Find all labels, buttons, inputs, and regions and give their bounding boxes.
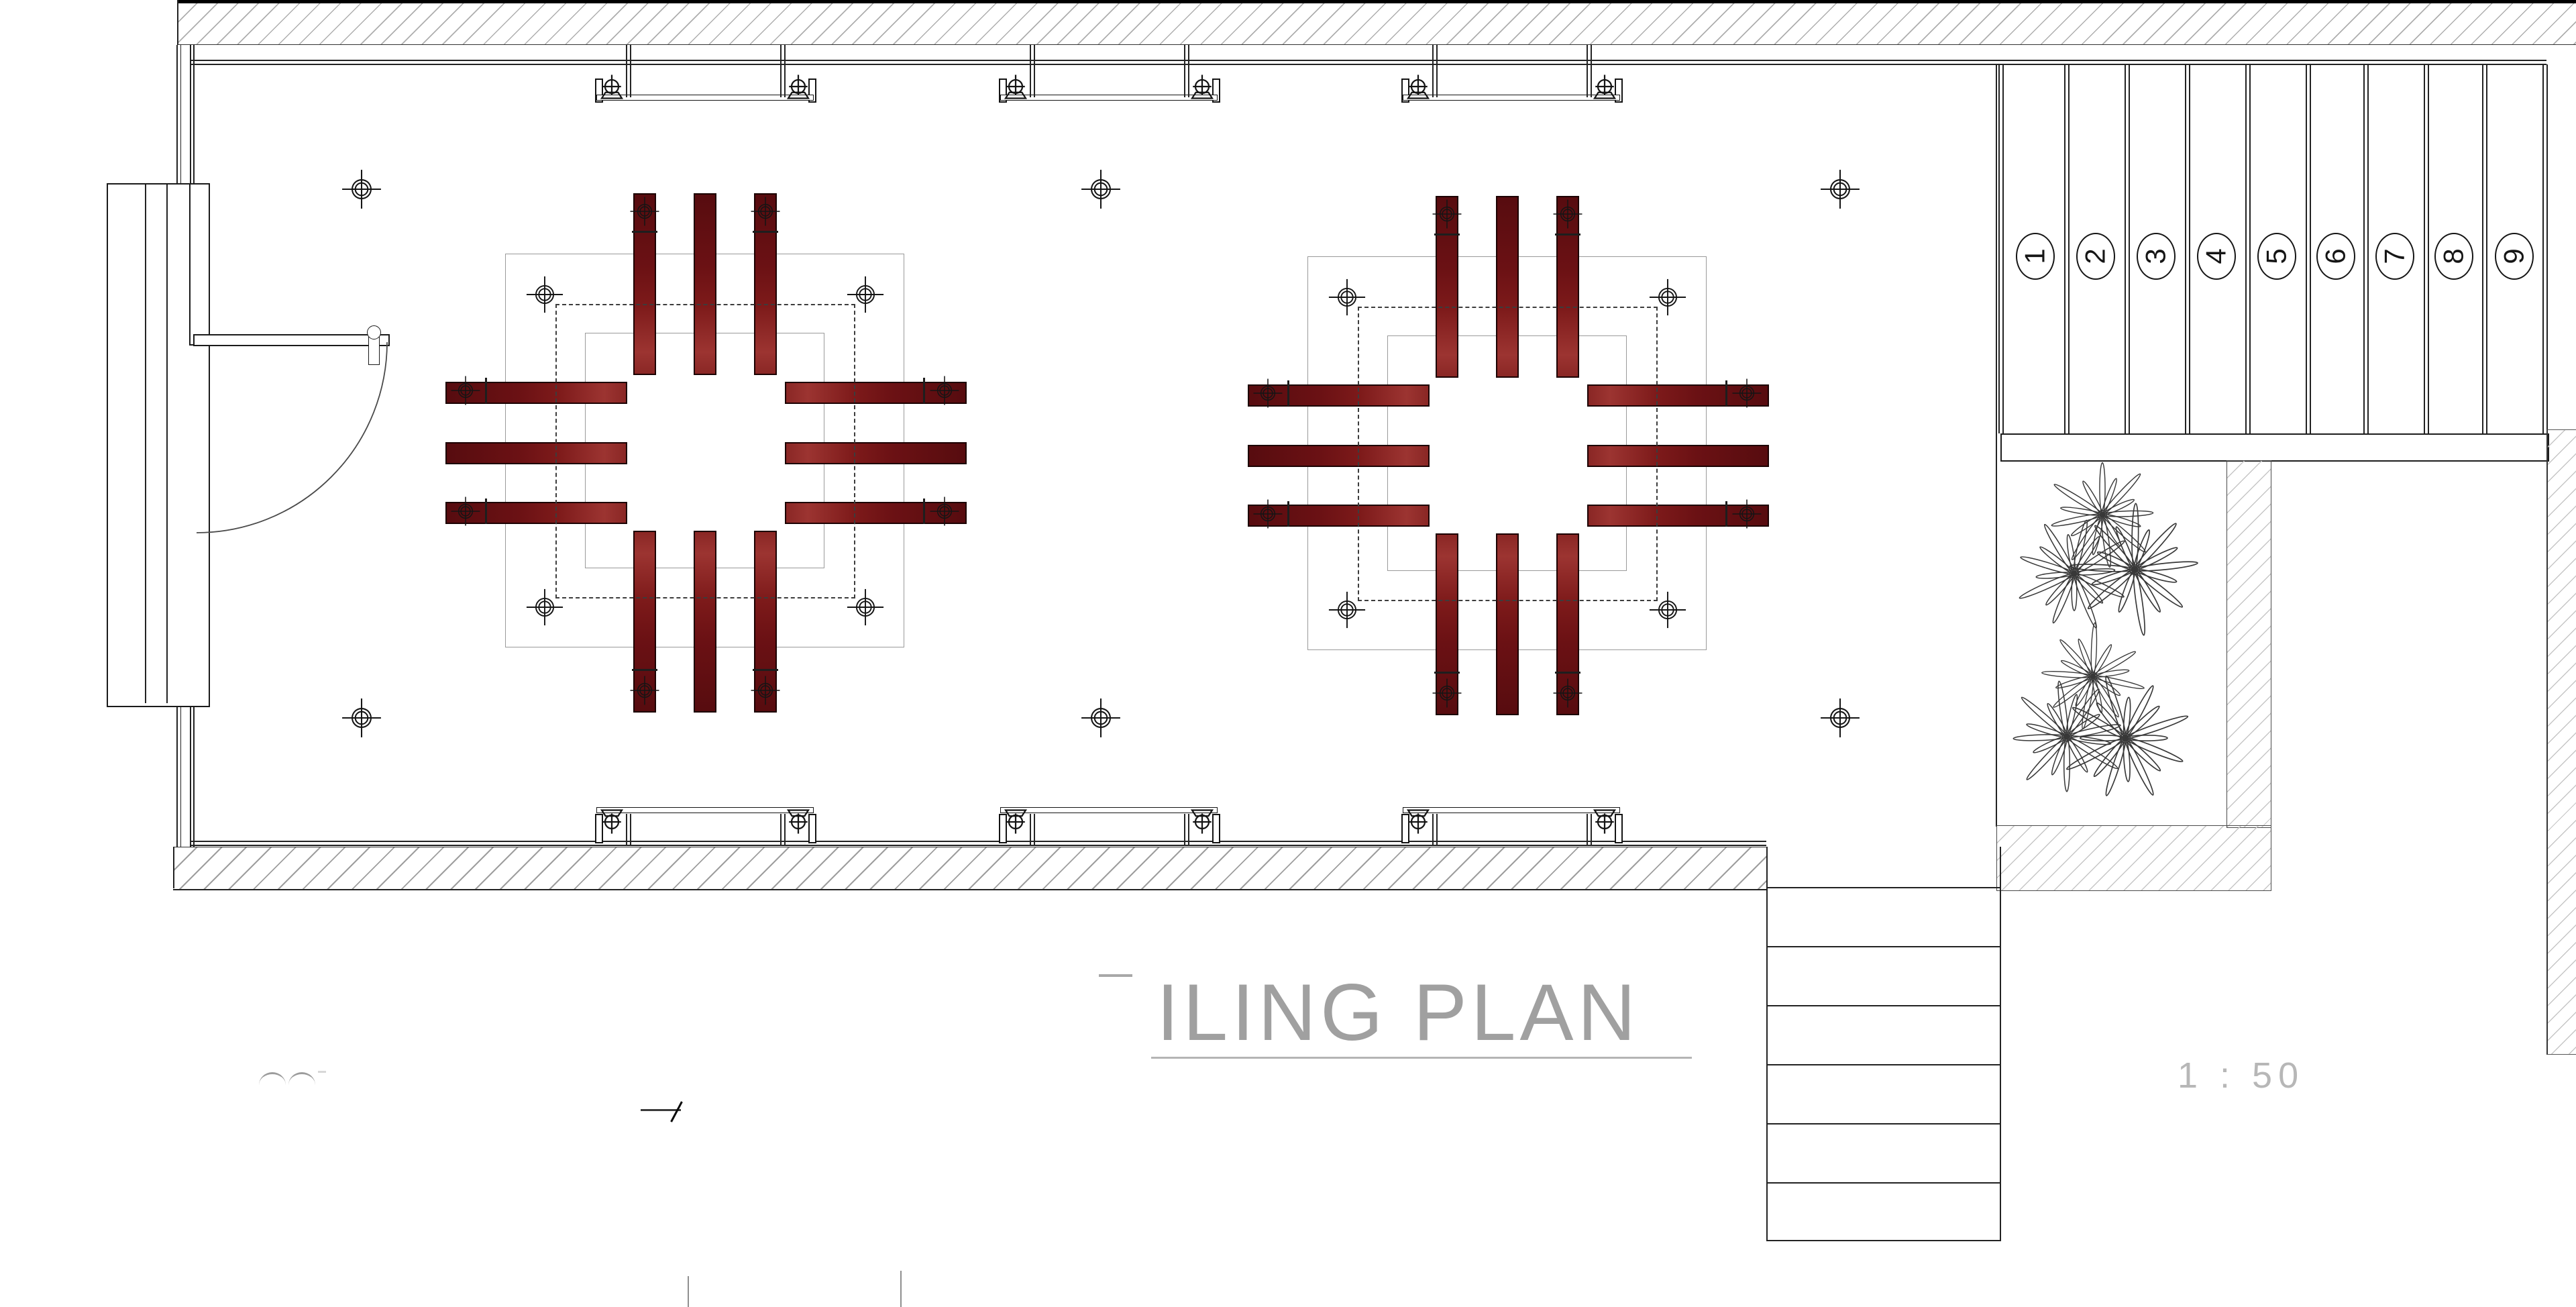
downlight-icon [750, 196, 781, 227]
top-window-3 [1401, 45, 1623, 103]
room-top-face-line-b [191, 64, 2546, 65]
downlight-icon [929, 496, 960, 527]
top-wall-left-edge [177, 0, 178, 45]
beam-tick [1287, 501, 1289, 527]
deck-board-joint [2129, 64, 2130, 433]
ceiling-light-icon [341, 697, 382, 739]
stair-tread-line [1766, 1005, 2001, 1006]
deck-board-number: 5 [2263, 248, 2291, 264]
blind-roller-icon [1405, 73, 1432, 100]
window-jamb-line [1587, 45, 1588, 97]
deck-board-joint [2486, 64, 2487, 433]
pocket-rim [596, 807, 814, 813]
window-jamb-line [1030, 814, 1031, 846]
downlight-icon [1552, 199, 1583, 229]
deck-board-tag-1: 1 [2016, 233, 2055, 280]
deck-board-joint [2249, 64, 2251, 433]
window-jamb-line [1587, 814, 1588, 846]
window-jamb-line [1432, 45, 1434, 97]
downlight-icon [450, 375, 481, 406]
door-panel-mullion-2 [166, 185, 168, 703]
top-window-1 [595, 45, 816, 103]
ceiling-feature-2 [1239, 185, 1776, 722]
blind-roller-icon [598, 808, 625, 835]
window-jamb-line [626, 45, 627, 97]
beam-tick [1555, 672, 1580, 674]
blind-roller-icon [1189, 73, 1216, 100]
downlight-icon [1731, 378, 1762, 409]
blind-roller-icon [785, 808, 812, 835]
deck-board-number: 1 [2021, 248, 2049, 264]
top-wall-hatch [177, 3, 2576, 45]
deck-board-tag-3: 3 [2137, 233, 2176, 280]
door-swing-arc [174, 322, 402, 550]
downlight-icon [1552, 678, 1583, 709]
blind-roller-icon [598, 73, 625, 100]
downlight-icon [1731, 499, 1762, 529]
bottom-window-3 [1401, 788, 1623, 846]
window-jamb-line [780, 45, 782, 97]
deck-board-tag-2: 2 [2076, 233, 2115, 280]
deck-board-joint [2310, 64, 2311, 433]
deck-board-joint [2185, 64, 2186, 433]
blind-roller-icon [1591, 73, 1618, 100]
window-jamb-line [1432, 814, 1434, 846]
downlight-icon [1432, 678, 1462, 709]
door-jamb-panel [189, 183, 210, 346]
beam-tick [632, 669, 657, 671]
beam-tick [923, 378, 925, 403]
clipped-text-dot [318, 1071, 326, 1073]
stair-tread-line [1766, 1240, 2001, 1241]
beam-tick [485, 378, 487, 403]
deck-board-number: 3 [2142, 248, 2170, 264]
downlight-icon [750, 675, 781, 706]
deck-board-joint [2245, 64, 2247, 433]
stair-tread-line [1766, 887, 2001, 888]
beam-tick [1725, 501, 1727, 527]
ceiling-light-icon [1819, 168, 1861, 210]
beam-tick [923, 499, 925, 524]
downlight-icon [846, 588, 885, 627]
deck-board-tag-7: 7 [2375, 233, 2414, 280]
stair-tread-line [1766, 1123, 2001, 1125]
blind-roller-icon [1189, 808, 1216, 835]
ceiling-light-icon [1819, 697, 1861, 739]
deck-board-joint [2424, 64, 2425, 433]
deck-board-joint [2306, 64, 2307, 433]
downlight-icon [525, 588, 564, 627]
deck-left-edge-a [1998, 64, 2000, 433]
deck-board-joint [2367, 64, 2369, 433]
window-jamb-line [1436, 814, 1438, 846]
pocket-rim [1000, 807, 1218, 813]
downlight-icon [629, 196, 660, 227]
window-jamb-line [1034, 814, 1035, 846]
blind-roller-icon [785, 73, 812, 100]
deck-board-tag-6: 6 [2316, 233, 2355, 280]
window-jamb-line [630, 814, 631, 846]
feature-dashed-setout [1358, 307, 1658, 601]
ceiling-light-icon [341, 168, 382, 210]
downlight-icon [846, 275, 885, 314]
clipped-text-arc [288, 1072, 315, 1085]
downlight-icon [1648, 590, 1687, 629]
deck-board-number: 6 [2322, 248, 2350, 264]
planter-bottom-wall [1996, 825, 2271, 891]
downlight-icon [1328, 278, 1366, 317]
stair-tread-line [1766, 946, 2001, 947]
downlight-icon [1252, 499, 1283, 529]
room-right-wall-line [1996, 64, 1997, 827]
window-jamb-line [780, 814, 782, 846]
room-top-face-line-a [191, 60, 2546, 61]
deck-board-joint [2363, 64, 2365, 433]
beam-tick [632, 231, 657, 233]
deck-board-joint [2064, 64, 2065, 433]
deck-board-number: 2 [2082, 248, 2110, 264]
dimension-tick-slash [670, 1101, 683, 1122]
beam-tick [1725, 380, 1727, 406]
deck-board-tag-8: 8 [2434, 233, 2473, 280]
beam-tick [753, 231, 778, 233]
bottom-wall-left-edge [173, 847, 174, 888]
window-jamb-line [626, 814, 627, 846]
downlight-icon [1328, 590, 1366, 629]
downlight-icon [1432, 199, 1462, 229]
deck-board-number: 4 [2202, 248, 2231, 264]
blind-roller-icon [1591, 808, 1618, 835]
downlight-icon [929, 375, 960, 406]
ceiling-plan-canvas: 1 2 3 4 5 6 7 8 9 ILING PLAN 1 : 50 [0, 0, 2576, 1307]
scale-label: 1 : 50 [2178, 1055, 2304, 1096]
deck-board-tag-9: 9 [2495, 233, 2534, 280]
stair-tread-line [1766, 1182, 2001, 1184]
clipped-text-arc [259, 1072, 286, 1085]
planter-divider-wall [2226, 460, 2271, 828]
blind-roller-icon [1405, 808, 1432, 835]
window-jamb-line [1184, 45, 1185, 97]
deck-board-joint [2068, 64, 2070, 433]
dimension-leader-line [641, 1109, 681, 1111]
ceiling-feature-1 [437, 182, 973, 719]
clipped-line-fragment [688, 1276, 689, 1307]
beam-tick [1555, 233, 1580, 236]
deck-board-number: 7 [2381, 248, 2409, 264]
bottom-wall-hatch [173, 847, 1766, 890]
beam-tick [1287, 380, 1289, 406]
window-jamb-line [1034, 45, 1035, 97]
bottom-window-1 [595, 788, 816, 846]
deck-board-joint [2125, 64, 2126, 433]
deck-board-number: 8 [2440, 248, 2468, 264]
window-jamb-line [1436, 45, 1438, 97]
ceiling-light-icon [1080, 697, 1122, 739]
right-boundary-wall [2546, 429, 2576, 1055]
deck-left-edge-b [2002, 64, 2004, 433]
drawing-title: ILING PLAN [1157, 966, 1640, 1059]
deck-board-joint [2428, 64, 2429, 433]
window-jamb-line [1184, 814, 1185, 846]
beam-tick [753, 669, 778, 671]
beam-tick [1434, 233, 1460, 236]
title-underline [1151, 1057, 1692, 1059]
deck-right-edge-b [2546, 64, 2548, 433]
stair-tread-line [1766, 1064, 2001, 1065]
door-panel-mullion-1 [145, 185, 146, 703]
clipped-line-fragment [900, 1271, 902, 1307]
downlight-icon [1648, 278, 1687, 317]
deck-right-edge-a [2542, 64, 2544, 433]
bottom-window-2 [999, 788, 1220, 846]
pocket-rim [1403, 807, 1620, 813]
deck-board-tag-5: 5 [2257, 233, 2296, 280]
blind-roller-icon [1002, 808, 1029, 835]
downlight-icon [1252, 378, 1283, 409]
ceiling-light-icon [1080, 168, 1122, 210]
beam-tick [485, 499, 487, 524]
top-window-2 [999, 45, 1220, 103]
downlight-icon [450, 496, 481, 527]
deck-board-number: 9 [2500, 248, 2528, 264]
title-partial-letter-fragment [1099, 974, 1132, 977]
downlight-icon [629, 675, 660, 706]
deck-board-joint [2189, 64, 2190, 433]
deck-board-tag-4: 4 [2197, 233, 2236, 280]
beam-tick [1434, 672, 1460, 674]
window-jamb-line [630, 45, 631, 97]
downlight-icon [525, 275, 564, 314]
feature-dashed-setout [555, 304, 855, 598]
window-jamb-line [1030, 45, 1031, 97]
blind-roller-icon [1002, 73, 1029, 100]
deck-board-joint [2482, 64, 2483, 433]
